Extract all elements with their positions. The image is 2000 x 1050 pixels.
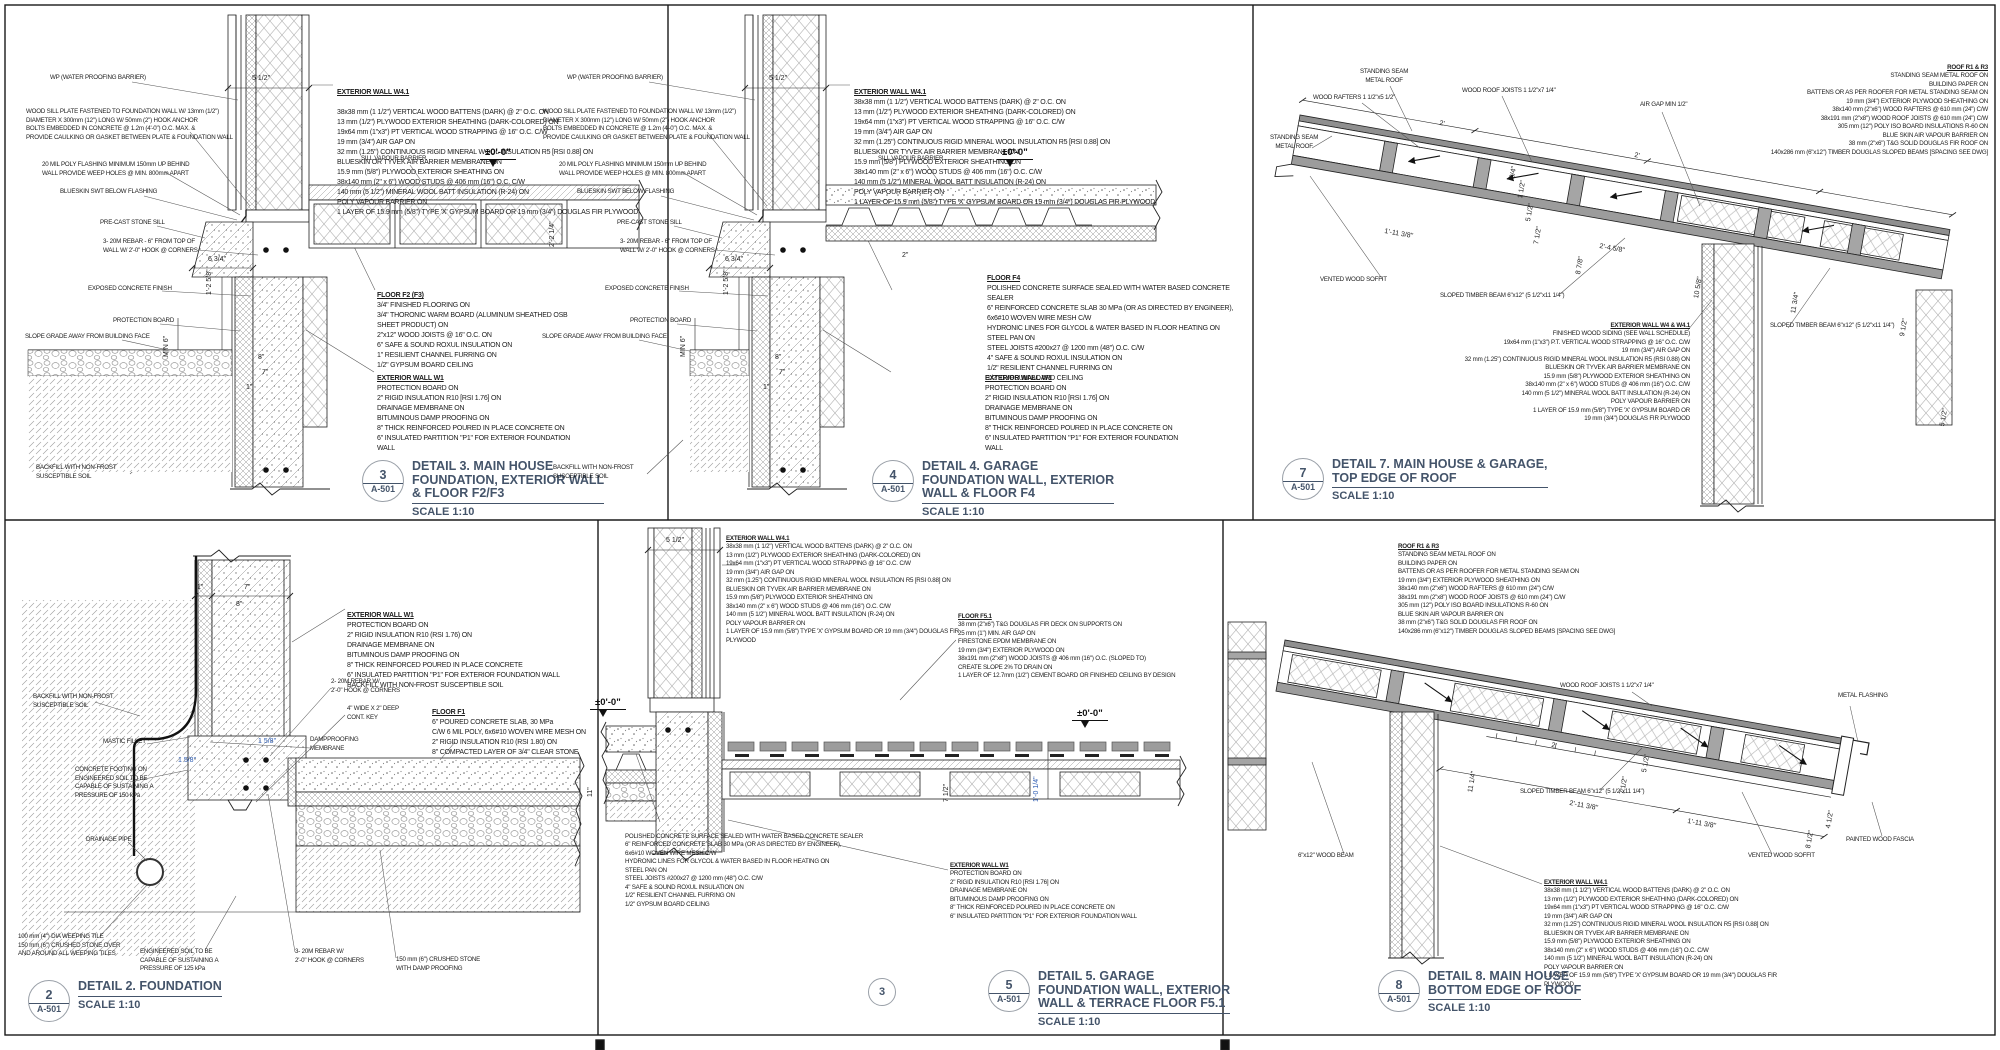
detail-5-scale: SCALE 1:10: [1038, 1014, 1230, 1028]
section-bubble-3: 3: [868, 978, 896, 1006]
weeping-note-d2: 100 mm (4") DIA WEEPING TILE 150 mm (6")…: [18, 933, 120, 959]
level-marker-d5-right: ±0'-0": [1072, 708, 1108, 732]
wall-w41-note-d5: EXTERIOR WALL W4.138x38 mm (1 1/2") VERT…: [726, 526, 961, 645]
fascia-label-d8: PAINTED WOOD FASCIA: [1846, 836, 1936, 845]
exposed-note-d4: EXPOSED CONCRETE FINISH: [605, 285, 689, 294]
detail-8-badge: 8A-501: [1378, 970, 1420, 1012]
dim-b-d5: 7 1/2": [943, 784, 950, 802]
dim-sill-d4: 6 3/4": [725, 256, 743, 263]
precast-note-d3: PRE-CAST STONE SILL: [100, 219, 165, 228]
dim-wall-width-d3: 5 1/2": [252, 75, 270, 82]
roof-note-d7: ROOF R1 & R3STANDING SEAM METAL ROOF ON …: [1660, 55, 1988, 157]
crushed-note-d2: 150 mm (6") CRUSHED STONE WITH DAMP PROO…: [396, 956, 480, 973]
detail-2-titleblock: 2A-501 DETAIL 2. FOUNDATION SCALE 1:10: [28, 980, 222, 1022]
detail-5-title: DETAIL 5. GARAGE FOUNDATION WALL, EXTERI…: [1038, 970, 1230, 1014]
detail-8-title: DETAIL 8. MAIN HOUSE BOTTOM EDGE OF ROOF: [1428, 970, 1581, 1000]
detail-3-scale: SCALE 1:10: [412, 504, 604, 518]
detail-2-title: DETAIL 2. FOUNDATION: [78, 980, 222, 997]
rebar-top-note-d4: 3- 20M REBAR - 6" FROM TOP OF WALL W/ 2'…: [620, 238, 715, 255]
dim-b-d2: 7": [244, 584, 250, 591]
dim-sill-d3: 6 3/4": [208, 256, 226, 263]
precast-note-d4: PRE-CAST STONE SILL: [617, 219, 682, 228]
note-title: EXTERIOR WALL W4.1: [337, 88, 667, 98]
drawing-sheet: EXTERIOR WALL W4.1 38x38 mm (1 1/2") VER…: [0, 0, 2000, 1050]
dim-c-d2: 8": [236, 601, 242, 608]
dim-8-d4: 8": [775, 354, 781, 361]
dim-d-d2: 1 5/8": [178, 757, 196, 764]
backfill-note-d3: BACKFILL WITH NON-FROST SUSCEPTIBLE SOIL: [36, 464, 116, 481]
dim-a-d2: 1": [197, 584, 203, 591]
footing-note-d2: CONCRETE FOOTING ON ENGINEERED SOIL TO B…: [75, 766, 153, 800]
dim-h1-d4: 1'-2 5/8": [723, 269, 730, 295]
detail-4-scale: SCALE 1:10: [922, 504, 1114, 518]
rebar-top-note-d3: 3- 20M REBAR - 6" FROM TOP OF WALL W/ 2'…: [103, 238, 198, 255]
wall-w4-note-d7: EXTERIOR WALL W4 & W4.1FINISHED WOOD SID…: [1460, 313, 1690, 424]
roof-note-d8: ROOF R1 & R3STANDING SEAM METAL ROOF ON …: [1398, 534, 1728, 636]
protection-note-d3: PROTECTION BOARD: [113, 317, 174, 326]
wall-w41-note-d8: EXTERIOR WALL W4.138x38 mm (1 1/2") VERT…: [1544, 870, 1804, 989]
airgap-label-d7: AIR GAP MIN 1/2": [1640, 101, 1687, 110]
dim-min6-d3: MIN 6": [163, 336, 170, 357]
detail-5-badge: 5A-501: [988, 970, 1030, 1012]
detail-7-title: DETAIL 7. MAIN HOUSE & GARAGE, TOP EDGE …: [1332, 458, 1548, 488]
joists-label-d7: WOOD ROOF JOISTS 1 1/2"x7 1/4": [1462, 87, 1556, 96]
flashing-label-d8: METAL FLASHING: [1838, 692, 1888, 701]
detail-4-titleblock: 4A-501 DETAIL 4. GARAGE FOUNDATION WALL,…: [872, 460, 1114, 518]
beam2-label-d8: 6"x12" WOOD BEAM: [1298, 852, 1354, 861]
detail-4-badge: 4A-501: [872, 460, 914, 502]
wall-w1-note-d4: EXTERIOR WALL W1PROTECTION BOARD ON 2" R…: [985, 364, 1195, 454]
sill-plate-note-d4: WOOD SILL PLATE FASTENED TO FOUNDATION W…: [543, 108, 750, 142]
poly-flashing-note-d4: 20 MIL POLY FLASHING MINIMUM 150mm UP BE…: [559, 161, 706, 178]
wall-w41-note-d4: EXTERIOR WALL W4.138x38 mm (1 1/2") VERT…: [854, 78, 1184, 208]
level-marker-d4: ±0'-0": [997, 147, 1033, 171]
dim-w-d5: 5 1/2": [666, 537, 684, 544]
rebar3-note-d2: 3- 20M REBAR W/ 2'-0" HOOK @ CORNERS: [295, 948, 364, 965]
floor-f4-note-d5: POLISHED CONCRETE SURFACE SEALED WITH WA…: [625, 824, 925, 909]
detail-5-titleblock: 5A-501 DETAIL 5. GARAGE FOUNDATION WALL,…: [988, 970, 1230, 1028]
sill-vb-note-d4: SILL VAPOUR BARRIER: [878, 155, 943, 164]
detail-8-scale: SCALE 1:10: [1428, 1000, 1581, 1014]
eng-soil-note-d2: ENGINEERED SOIL TO BE CAPABLE OF SUSTAIN…: [140, 948, 218, 974]
detail-7-scale: SCALE 1:10: [1332, 488, 1548, 502]
poly-flashing-note-d3: 20 MIL POLY FLASHING MINIMUM 150mm UP BE…: [42, 161, 189, 178]
slope-grade-note-d3: SLOPE GRADE AWAY FROM BUILDING FACE: [25, 333, 150, 342]
fillet-note-d2: MASTIC FILLET: [103, 738, 146, 747]
wall-w1-note-d5: EXTERIOR WALL W1PROTECTION BOARD ON 2" R…: [950, 853, 1170, 921]
slope-grade-note-d4: SLOPE GRADE AWAY FROM BUILDING FACE: [542, 333, 667, 342]
sill-vb-note-d3: SILL VAPOUR BARRIER: [361, 155, 426, 164]
detail-4-title: DETAIL 4. GARAGE FOUNDATION WALL, EXTERI…: [922, 460, 1114, 504]
detail-2-scale: SCALE 1:10: [78, 997, 222, 1011]
detail-7-badge: 7A-501: [1282, 458, 1324, 500]
detail-2-badge: 2A-501: [28, 980, 70, 1022]
dim-a-d5: 11": [587, 787, 594, 797]
level-marker-d3: ±0'-0": [480, 147, 516, 171]
floor-f51-note: FLOOR F5.138 mm (2"x6") T&G DOUGLAS FIR …: [958, 604, 1208, 681]
dim-8-d3: 8": [258, 354, 264, 361]
rafters-label-d7: WOOD RAFTERS 1 1/2"x5 1/2": [1313, 94, 1395, 103]
joists-label-d8: WOOD ROOF JOISTS 1 1/2"x7 1/4": [1560, 682, 1654, 691]
level-marker-d5-left: ±0'-0": [590, 697, 626, 721]
dim-c-d5: 1'-0 1/4": [1033, 776, 1040, 802]
detail-7-titleblock: 7A-501 DETAIL 7. MAIN HOUSE & GARAGE, TO…: [1282, 458, 1548, 502]
dim-7-d4: 7": [779, 369, 785, 376]
soffit-label-d7: VENTED WOOD SOFFIT: [1320, 276, 1387, 285]
detail-3-badge: 3A-501: [362, 460, 404, 502]
blueskin-note-d3: BLUESKIN SWT BELOW FLASHING: [60, 188, 157, 197]
dim-min6-d4: MIN 6": [680, 336, 687, 357]
dim-wall-width-d4: 5 1/2": [769, 75, 787, 82]
protection-note-d4: PROTECTION BOARD: [630, 317, 691, 326]
dim-pan-d4: 2": [902, 252, 908, 259]
blueskin-note-d4: BLUESKIN SWT BELOW FLASHING: [577, 188, 674, 197]
wall-w1-note-d3: EXTERIOR WALL W1PROTECTION BOARD ON 2" R…: [377, 364, 587, 454]
ssmr-label-2: STANDING SEAM METAL ROOF: [1270, 134, 1318, 151]
dim-1-d3: 1": [246, 384, 252, 391]
backfill-note-d4: BACKFILL WITH NON-FROST SUSCEPTIBLE SOIL: [553, 464, 633, 481]
backfill-note-d2: BACKFILL WITH NON-FROST SUSCEPTIBLE SOIL: [33, 693, 113, 710]
soffit-label-d8: VENTED WOOD SOFFIT: [1748, 852, 1815, 861]
dim-e-d2: 1 5/8": [258, 738, 276, 745]
dim-cav-d3: 2'-2 1/4": [549, 221, 556, 247]
wp-note-d3: WP (WATER PROOFING BARRIER): [50, 74, 146, 83]
beam-label-d7: SLOPED TIMBER BEAM 6"x12" (5 1/2"x11 1/4…: [1440, 292, 1564, 301]
sill-plate-note-d3: WOOD SILL PLATE FASTENED TO FOUNDATION W…: [26, 108, 233, 142]
drain-note-d2: DRAINAGE PIPE: [86, 836, 132, 845]
key-note-d2: 4" WIDE X 2" DEEP CONT. KEY: [347, 705, 399, 722]
ssmr-label-1: STANDING SEAM METAL ROOF: [1360, 68, 1408, 85]
detail-8-titleblock: 8A-501 DETAIL 8. MAIN HOUSE BOTTOM EDGE …: [1378, 970, 1581, 1014]
damp-note-d2: DAMPPROOFING MEMBRANE: [310, 736, 358, 753]
floor-f1-note: FLOOR F16" POURED CONCRETE SLAB, 30 MPa …: [432, 698, 592, 758]
floor-f2-note: FLOOR F2 (F3)3/4" FINISHED FLOORING ON 3…: [377, 281, 587, 371]
dim-h1-d3: 1'-2 5/8": [206, 269, 213, 295]
wp-note-d4: WP (WATER PROOFING BARRIER): [567, 74, 663, 83]
dim-1-d4: 1": [763, 384, 769, 391]
exposed-note-d3: EXPOSED CONCRETE FINISH: [88, 285, 172, 294]
dim-7-d3: 7": [262, 369, 268, 376]
rebar2-note-d2: 2- 20M REBAR W/ 2'-0" HOOK @ CORNERS: [331, 678, 400, 695]
